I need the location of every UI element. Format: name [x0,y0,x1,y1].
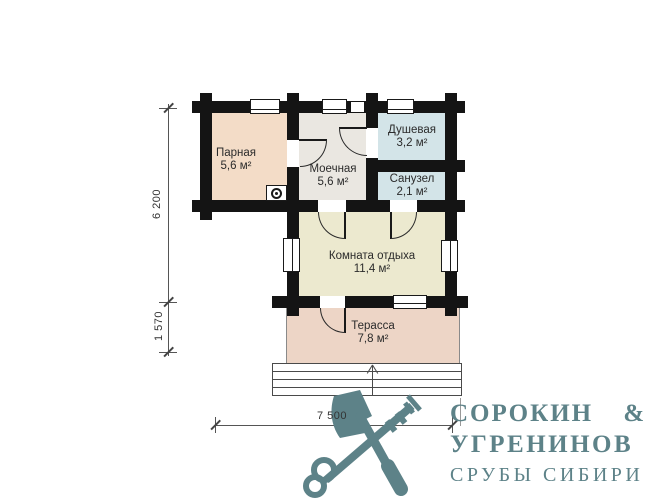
vent-opening [351,102,364,112]
room-name: Комната отдыха [312,250,432,263]
dimension-label-height: 6 200 [151,174,163,234]
room-name: Душевая [372,124,452,137]
log-end [192,200,200,212]
window-rest-right [441,240,458,272]
logo-line1: СОРОКИН & [450,400,666,428]
log-end [287,93,299,101]
room-label-toilet: Санузел 2,1 м² [372,173,452,199]
room-area: 2,1 м² [372,186,452,199]
logo-text: СОРОКИН & УГРЕНИНОВ СРУБЫ СИБИРИ [450,400,666,487]
room-area: 5,6 м² [293,176,373,189]
log-end [445,93,457,101]
log-end [200,212,212,220]
door-washing-opening [318,200,346,212]
log-end [200,93,212,101]
dimension-label-width: 7 500 [302,410,362,422]
log-end [445,308,457,316]
room-label-steam: Парная 5,6 м² [196,147,276,173]
room-label-rest: Комната отдыха 11,4 м² [312,250,432,276]
window-terrace-wall [393,295,427,309]
room-name: Санузел [372,173,452,186]
wall-terrace [272,296,468,308]
room-label-washing: Моечная 5,6 м² [293,163,373,189]
room-name: Моечная [293,163,373,176]
log-end [366,93,378,101]
room-name: Парная [196,147,276,160]
room-area: 3,2 м² [372,137,452,150]
log-end [457,200,465,212]
dimension-label-terrace: 1 570 [153,296,165,356]
logo-line2: УГРЕНИНОВ [450,431,666,459]
window-washing-room [322,99,347,114]
room-label-shower: Душевая 3,2 м² [372,124,452,150]
room-area: 11,4 м² [312,263,432,276]
log-end [192,101,200,113]
room-area: 5,6 м² [196,160,276,173]
door-terrace-opening [320,296,345,308]
log-end [457,160,465,172]
window-shower [387,99,414,114]
window-steam-room [250,99,280,114]
door-toilet-opening [390,200,417,212]
room-name: Терасса [333,320,413,333]
logo-tagline: СРУБЫ СИБИРИ [450,464,666,487]
window-rest-left [283,238,300,272]
log-end [287,308,299,316]
axe-icon [332,390,401,489]
log-end [457,101,465,113]
room-label-terrace: Терасса 7,8 м² [333,320,413,346]
wall-shower-toilet [366,160,457,172]
floor-plan-canvas: 6 200 1 570 7 500 Парная 5,6 м² Моечная … [0,0,667,502]
stove-icon [266,185,287,201]
logo-emblem [300,386,465,502]
room-area: 7,8 м² [333,333,413,346]
